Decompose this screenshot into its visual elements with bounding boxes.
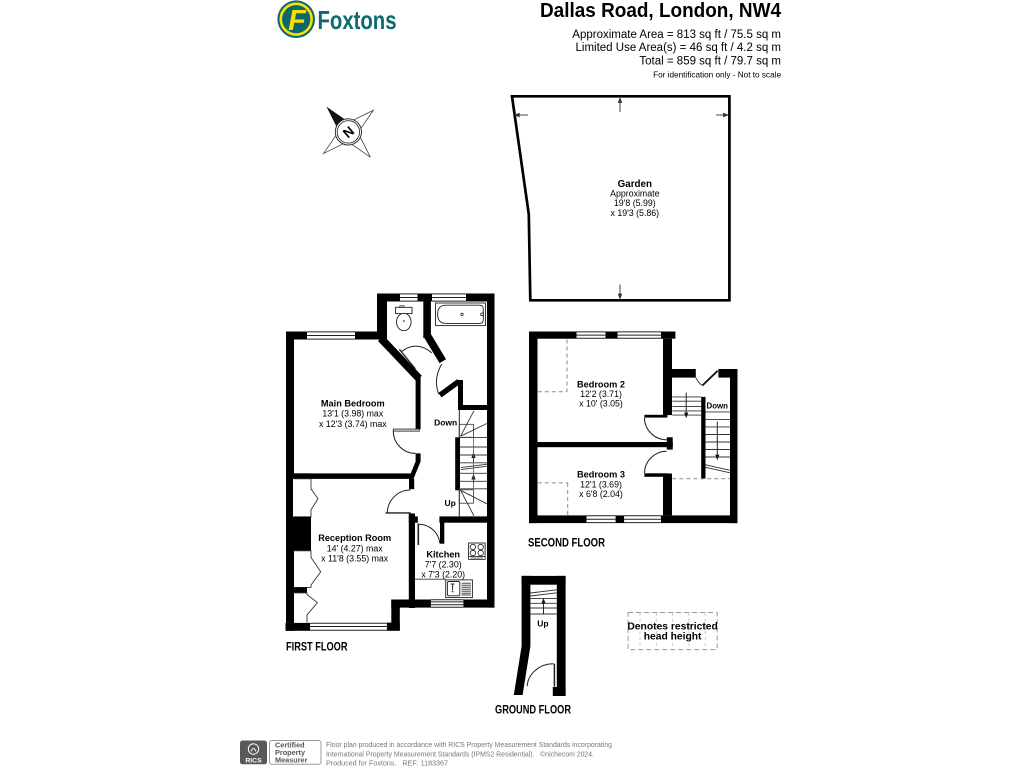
svg-text:For identification only - Not: For identification only - Not to scale: [653, 71, 781, 80]
svg-text:GROUND FLOOR: GROUND FLOOR: [495, 703, 571, 717]
svg-text:RICS: RICS: [245, 757, 262, 764]
svg-text:Measurer: Measurer: [275, 755, 308, 764]
svg-text:12'1 (3.69): 12'1 (3.69): [580, 479, 622, 489]
svg-text:Reception Room: Reception Room: [318, 533, 391, 543]
svg-text:Approximate: Approximate: [610, 189, 659, 199]
svg-text:13'1 (3.98) max: 13'1 (3.98) max: [322, 409, 383, 419]
svg-text:Approximate Area = 813 sq ft /: Approximate Area = 813 sq ft / 75.5 sq m: [572, 29, 781, 41]
svg-text:x 6'8 (2.04): x 6'8 (2.04): [579, 489, 623, 499]
svg-text:Main Bedroom: Main Bedroom: [321, 398, 385, 408]
svg-text:x 12'3 (3.74) max: x 12'3 (3.74) max: [319, 419, 387, 429]
svg-text:Bedroom 3: Bedroom 3: [577, 470, 625, 480]
svg-text:Down: Down: [434, 418, 457, 428]
svg-text:x 19'3 (5.86): x 19'3 (5.86): [610, 208, 659, 218]
svg-text:19'8 (5.99): 19'8 (5.99): [614, 198, 656, 208]
svg-text:SECOND FLOOR: SECOND FLOOR: [528, 536, 605, 550]
svg-text:F: F: [288, 5, 307, 37]
svg-text:International Property Measure: International Property Measurement Stand…: [326, 750, 594, 759]
svg-text:Produced for Foxtons. REF: 1: Produced for Foxtons. REF: 1183367: [326, 759, 448, 768]
svg-text:Kitchen: Kitchen: [426, 549, 460, 559]
svg-text:Foxtons: Foxtons: [318, 5, 397, 35]
svg-text:12'2 (3.71): 12'2 (3.71): [580, 389, 622, 399]
svg-text:x 10' (3.05): x 10' (3.05): [579, 399, 623, 409]
svg-text:Total = 859 sq ft / 79.7 sq m: Total = 859 sq ft / 79.7 sq m: [639, 56, 781, 68]
svg-text:head height: head height: [644, 632, 702, 643]
svg-text:Up: Up: [445, 498, 456, 508]
svg-text:Bedroom 2: Bedroom 2: [577, 379, 625, 389]
svg-text:FIRST FLOOR: FIRST FLOOR: [286, 640, 348, 654]
svg-text:14' (4.27) max: 14' (4.27) max: [327, 543, 384, 553]
svg-text:Floor plan produced in accorda: Floor plan produced in accordance with R…: [326, 740, 612, 749]
svg-text:x 7'3 (2.20): x 7'3 (2.20): [421, 569, 465, 579]
svg-text:x 11'8 (3.55) max: x 11'8 (3.55) max: [321, 554, 389, 564]
svg-text:Up: Up: [537, 619, 548, 629]
svg-text:Limited Use Area(s) = 46 sq ft: Limited Use Area(s) = 46 sq ft / 4.2 sq …: [576, 42, 782, 54]
svg-text:Dallas Road, London, NW4: Dallas Road, London, NW4: [540, 0, 782, 22]
svg-text:Down: Down: [707, 401, 729, 411]
svg-text:7'7 (2.30): 7'7 (2.30): [425, 559, 462, 569]
